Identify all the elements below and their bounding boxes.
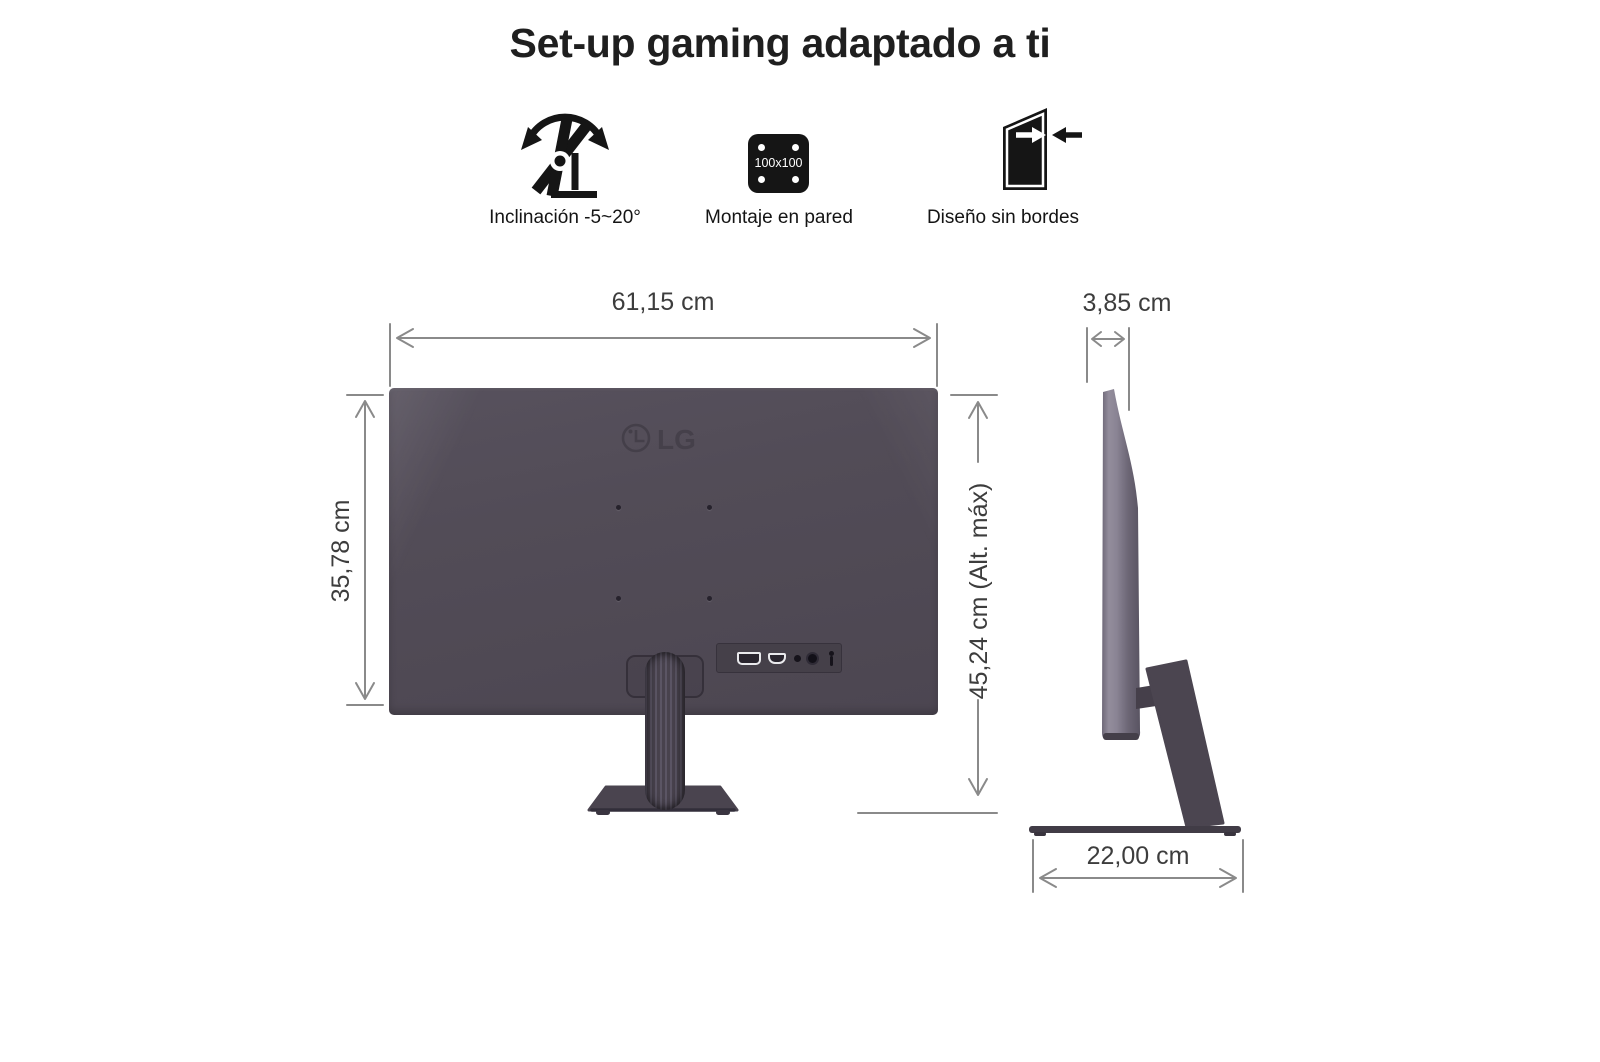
page-title: Set-up gaming adaptado a ti bbox=[0, 20, 1560, 67]
side-stand-leg bbox=[1147, 661, 1223, 827]
hdmi-port bbox=[768, 653, 786, 664]
base-depth-dimension-label: 22,00 cm bbox=[1038, 842, 1238, 871]
wall-mount-label: Montaje en pared bbox=[649, 207, 909, 229]
side-stand-bracket bbox=[1136, 684, 1163, 709]
vesa-hole bbox=[707, 596, 712, 601]
vesa-hole-dot bbox=[792, 144, 799, 151]
wall-mount-icon: 100x100 bbox=[748, 134, 809, 193]
width-dimension-label: 61,15 cm bbox=[513, 288, 813, 317]
kensington-lock-slot-bar bbox=[830, 656, 833, 666]
displayport-port bbox=[737, 652, 761, 665]
vesa-hole bbox=[616, 596, 621, 601]
vesa-hole-dot bbox=[758, 176, 765, 183]
vesa-hole bbox=[707, 505, 712, 510]
width-dimension-lines bbox=[390, 324, 937, 386]
power-jack-port bbox=[806, 652, 819, 665]
product-dimensions-diagram: Set-up gaming adaptado a ti Inclinación … bbox=[0, 0, 1600, 1062]
port-panel bbox=[716, 643, 842, 673]
tilt-icon bbox=[505, 98, 625, 210]
side-view bbox=[1029, 389, 1241, 836]
audio-jack-port bbox=[794, 655, 801, 662]
height-dimension-label: 35,78 cm bbox=[327, 401, 357, 701]
vesa-hole-dot bbox=[758, 144, 765, 151]
borderless-design-icon bbox=[985, 95, 1085, 197]
side-stand-base bbox=[1029, 826, 1241, 833]
borderless-label: Diseño sin bordes bbox=[873, 207, 1133, 229]
stand-column bbox=[645, 652, 685, 810]
vesa-hole-dot bbox=[792, 176, 799, 183]
vesa-size-text: 100x100 bbox=[748, 156, 809, 170]
depth-dimension-label: 3,85 cm bbox=[1027, 289, 1227, 318]
vesa-hole bbox=[616, 505, 621, 510]
side-panel bbox=[1102, 389, 1140, 740]
max-height-dimension-label: 45,24 cm (Alt. máx) bbox=[965, 441, 995, 741]
depth-dimension-lines bbox=[1087, 328, 1129, 410]
